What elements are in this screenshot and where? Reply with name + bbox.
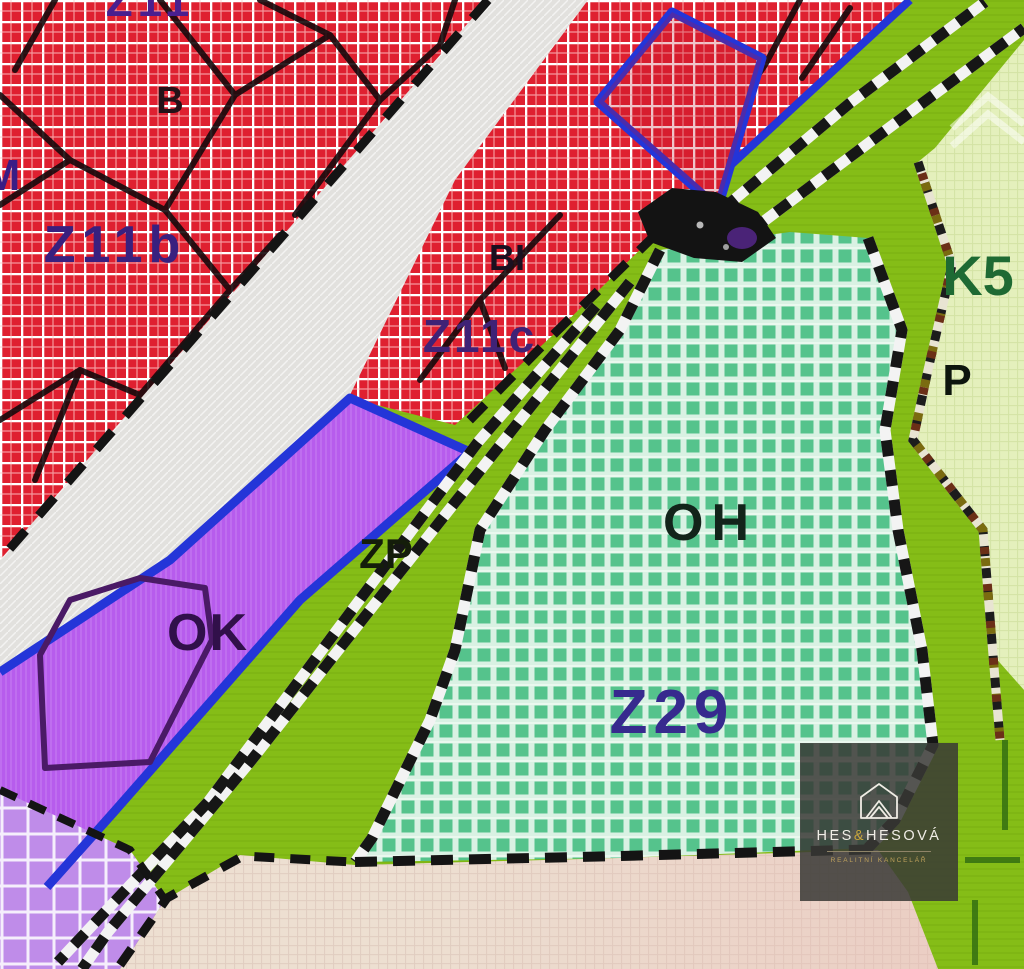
- zone-label-fragment-left: M: [0, 151, 20, 200]
- brand-ampersand: &: [854, 828, 866, 844]
- brand-end: HESOVÁ: [866, 828, 941, 844]
- house-logo-icon: [856, 780, 902, 822]
- zone-label-bi: BI: [489, 237, 525, 278]
- brand-divider: [827, 851, 931, 852]
- zone-label-k5: K5: [942, 244, 1014, 307]
- zone-label-ok: OK: [167, 604, 249, 662]
- zone-label-fragment-top: Z11: [106, 0, 194, 26]
- brand-name: HES&HESOVÁ: [817, 828, 942, 844]
- zone-label-p: P: [942, 356, 971, 405]
- zone-label-z11c: Z11c: [423, 310, 537, 362]
- zone-label-zp: ZP: [359, 530, 413, 577]
- brand-subtitle: REALITNÍ KANCELÁŘ: [831, 857, 928, 864]
- brand-start: HES: [817, 828, 854, 844]
- zone-label-oh: OH: [663, 494, 757, 552]
- zoning-map: B Z11b BI Z11c ZP OK OH Z29 K5 P Z11 M H…: [0, 0, 1024, 969]
- zone-label-z11b: Z11b: [44, 216, 187, 274]
- zone-label-z29: Z29: [610, 678, 735, 747]
- realty-watermark: HES&HESOVÁ REALITNÍ KANCELÁŘ: [800, 743, 958, 901]
- zone-label-b: B: [156, 80, 183, 122]
